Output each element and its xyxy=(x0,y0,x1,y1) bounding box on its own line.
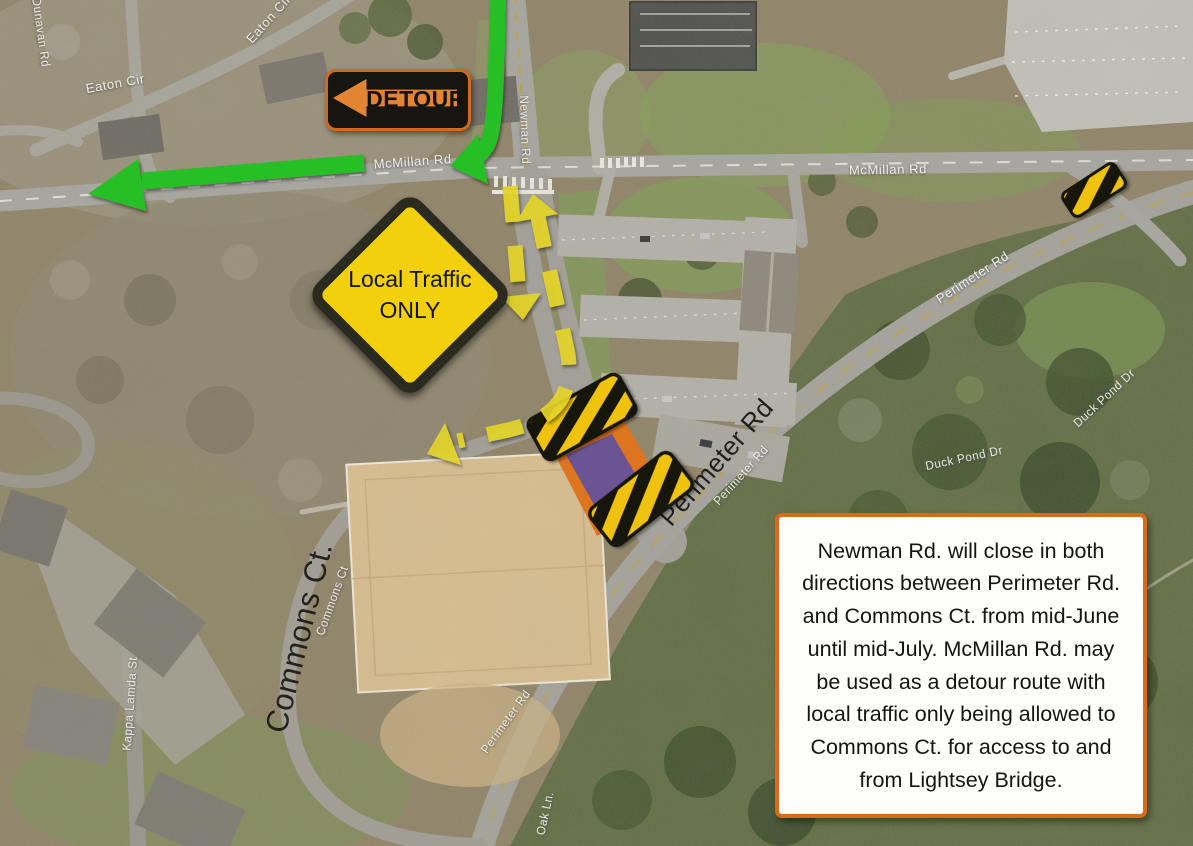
closure-info-box: Newman Rd. will close in both directions… xyxy=(775,513,1147,818)
detour-sign-label: DETOUR xyxy=(366,72,466,126)
road-label-newman-rd: Newman Rd xyxy=(517,95,531,164)
local-traffic-line2: ONLY xyxy=(380,299,441,322)
local-traffic-only-text: Local Traffic ONLY xyxy=(346,231,474,359)
local-traffic-line1: Local Traffic xyxy=(348,268,472,291)
detour-map: McMillan Rd McMillan Rd Newman Rd Dunava… xyxy=(0,0,1193,846)
detour-sign: DETOUR xyxy=(325,69,471,131)
road-label-mcmillan-east: McMillan Rd xyxy=(849,161,927,177)
closure-info-text: Newman Rd. will close in both directions… xyxy=(795,535,1127,796)
